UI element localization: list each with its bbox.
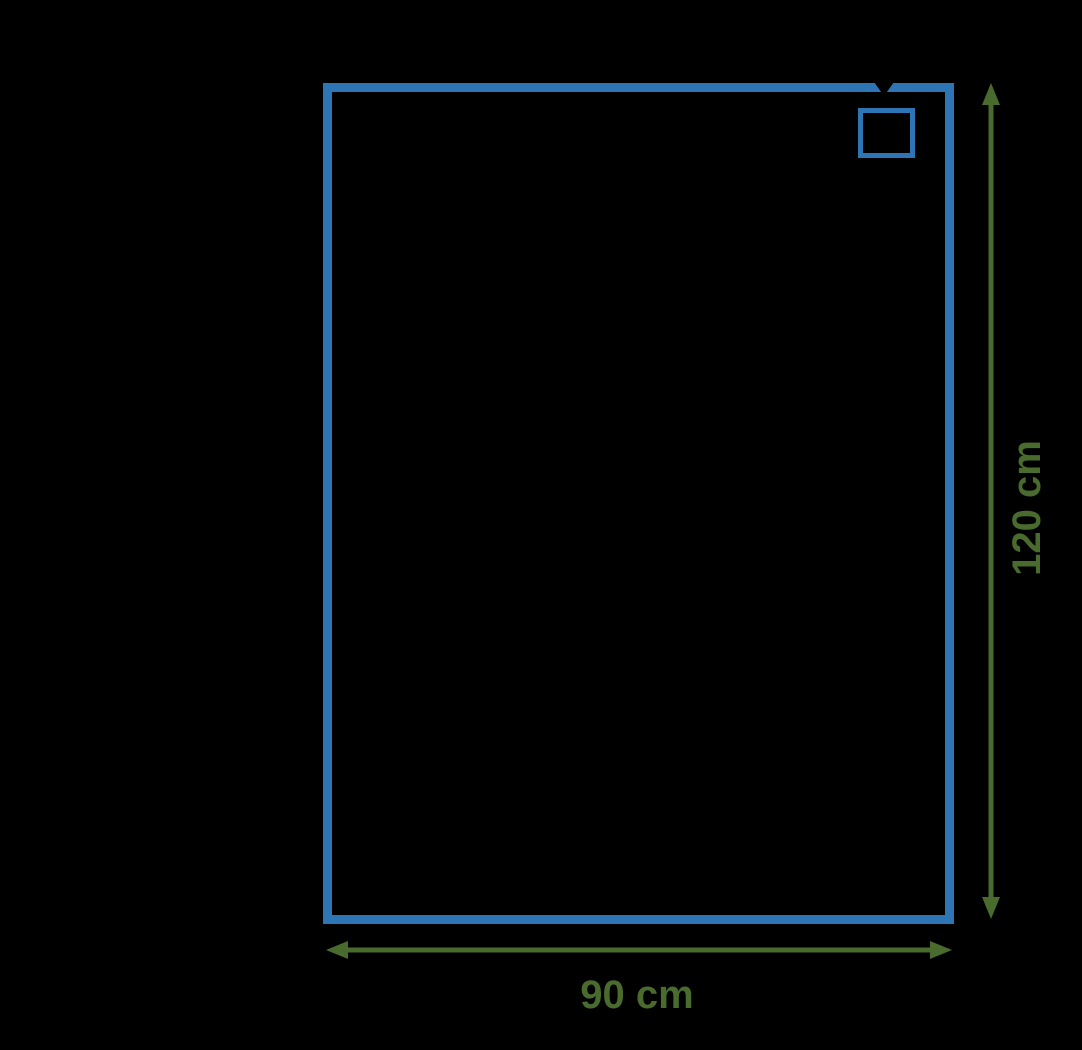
height-dimension-label: 120 cm — [1005, 408, 1049, 608]
height-arrow-head-top-icon — [982, 83, 1000, 105]
height-arrow-head-bottom-icon — [982, 897, 1000, 919]
width-arrow-head-right-icon — [930, 941, 952, 959]
width-dimension-label: 90 cm — [527, 973, 747, 1017]
width-arrow-head-left-icon — [326, 941, 348, 959]
diagram-canvas: 120 cm 90 cm — [0, 0, 1082, 1050]
outer-rectangle — [323, 83, 954, 924]
inner-square — [858, 108, 915, 158]
